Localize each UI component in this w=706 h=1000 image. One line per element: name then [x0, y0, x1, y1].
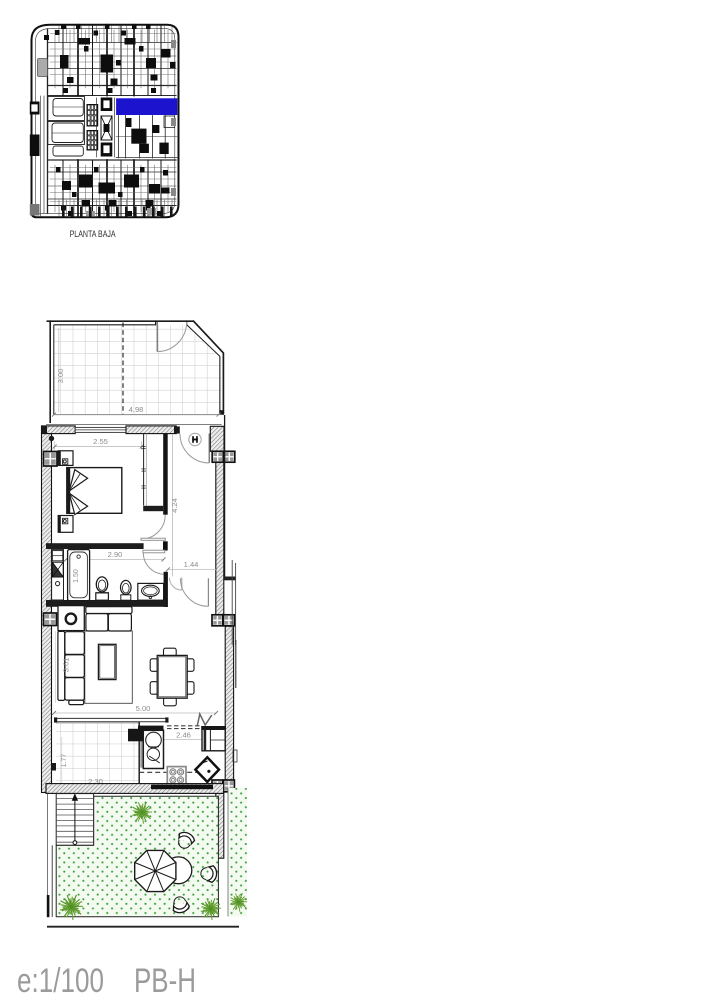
svg-text:1.44: 1.44 — [184, 560, 199, 569]
svg-text:PLANTA BAJA: PLANTA BAJA — [70, 229, 116, 240]
svg-text:2.90: 2.90 — [108, 550, 123, 559]
svg-text:3.61: 3.61 — [62, 658, 71, 673]
svg-text:e:1/100: e:1/100 — [17, 962, 104, 1000]
svg-text:3.00: 3.00 — [56, 369, 65, 384]
svg-text:2.55: 2.55 — [93, 437, 108, 446]
svg-text:5.00: 5.00 — [136, 704, 151, 713]
svg-text:2.46: 2.46 — [176, 731, 191, 740]
svg-text:PB-H: PB-H — [134, 962, 196, 1000]
svg-text:1.50: 1.50 — [73, 569, 80, 583]
svg-text:4.98: 4.98 — [129, 405, 144, 414]
svg-text:1.77: 1.77 — [61, 754, 68, 768]
svg-text:4.24: 4.24 — [170, 498, 179, 513]
